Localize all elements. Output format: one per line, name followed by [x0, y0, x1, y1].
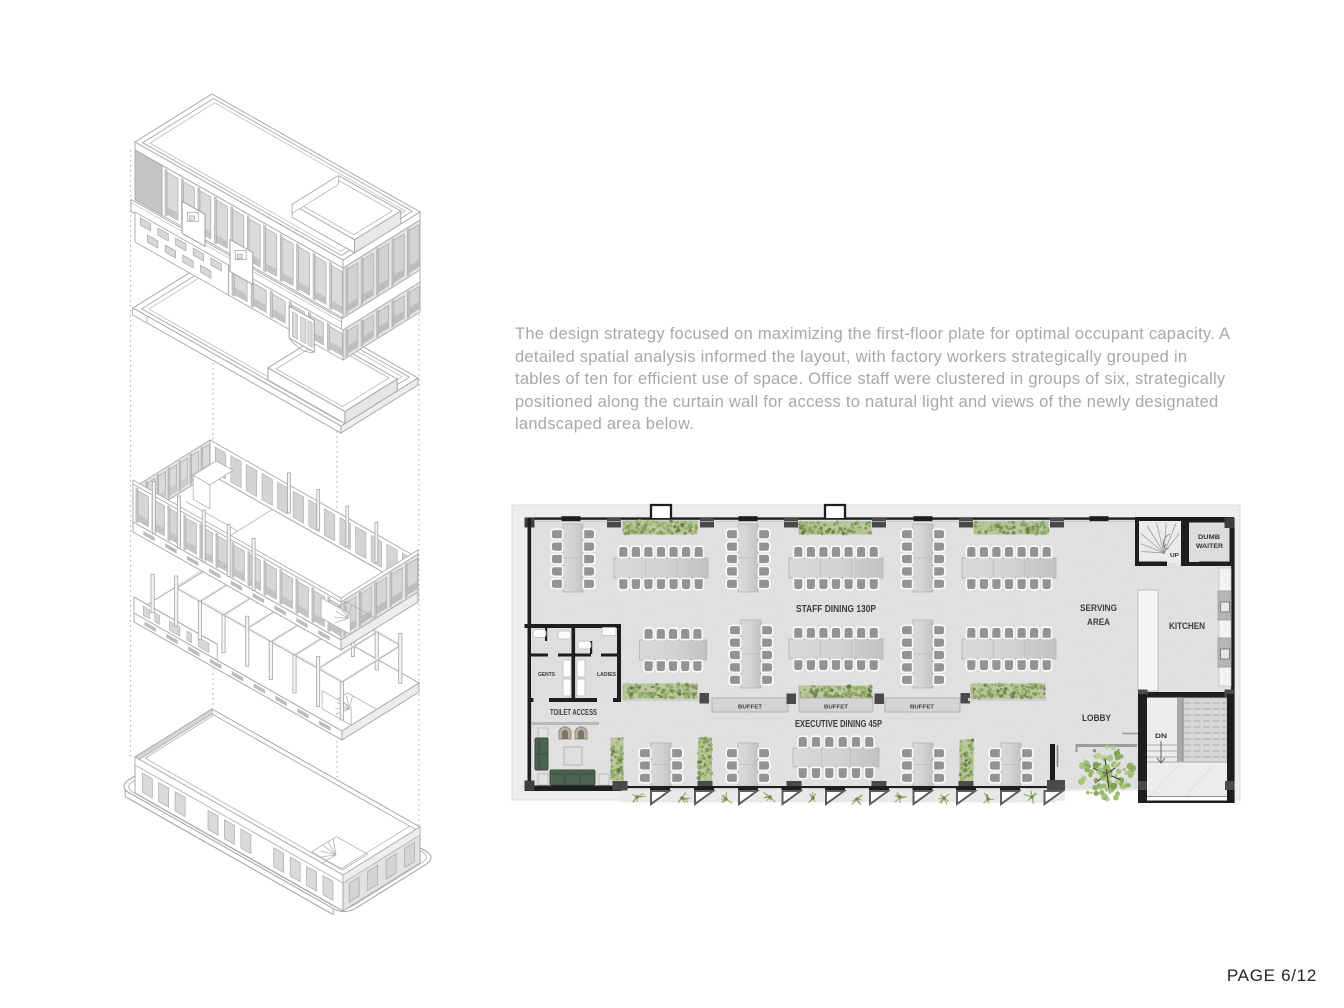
svg-text:SERVING: SERVING — [1080, 603, 1117, 614]
svg-text:BUFFET: BUFFET — [824, 705, 849, 711]
svg-text:LOBBY: LOBBY — [1082, 713, 1112, 724]
svg-text:STAFF DINING 130P: STAFF DINING 130P — [796, 603, 876, 615]
svg-text:TOILET ACCESS: TOILET ACCESS — [550, 707, 597, 717]
svg-text:BUFFET: BUFFET — [910, 705, 935, 711]
svg-text:WAITER: WAITER — [1196, 543, 1223, 550]
svg-text:DUMB: DUMB — [1198, 534, 1220, 541]
svg-text:DN: DN — [1155, 734, 1167, 740]
svg-text:AREA: AREA — [1087, 617, 1110, 628]
svg-text:GENTS: GENTS — [538, 672, 555, 678]
svg-text:UP: UP — [1170, 553, 1179, 559]
svg-text:LADIES: LADIES — [597, 672, 616, 678]
svg-text:KITCHEN: KITCHEN — [1169, 621, 1205, 632]
svg-text:EXECUTIVE DINING 45P: EXECUTIVE DINING 45P — [795, 718, 882, 730]
svg-text:BUFFET: BUFFET — [738, 705, 763, 711]
